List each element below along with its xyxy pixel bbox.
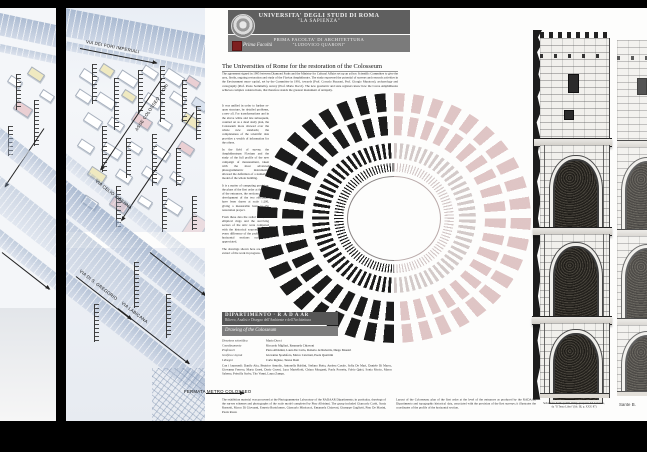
pilaster: [603, 234, 604, 316]
caption-text: The exhibition material was processed at…: [222, 398, 386, 414]
credit-label: Coordinamento: [222, 344, 266, 348]
banner-signature: Prima Facoltà: [243, 43, 272, 48]
credit-label: Direzione scientifica: [222, 339, 266, 343]
pilaster: [544, 323, 545, 398]
article-title: The Universities of Rome for the restora…: [222, 63, 398, 72]
city-block: [77, 138, 95, 154]
survey-rod: [92, 64, 97, 104]
attic-storey: [540, 38, 610, 139]
survey-rod: [182, 80, 187, 122]
city-block: [39, 89, 55, 103]
elevation-caption-line2: da "Il Terzo Libro" (lib. III, p. XXV, 8…: [538, 405, 610, 408]
credit-row: Direzione scientifica Mario Docci: [222, 339, 392, 343]
survey-rod: [126, 138, 131, 178]
arcade-third-order: [540, 145, 610, 227]
project-banner: Drawing of the Colosseum: [222, 326, 338, 336]
credit-row: Coordinamento Riccardo Migliari, Emanuel…: [222, 344, 392, 348]
university-banner: UNIVERSITA' DEGLI STUDI DI ROMA "LA SAPI…: [228, 10, 410, 52]
credit-label: I disegni: [222, 358, 266, 362]
arcade-third-order: [617, 147, 647, 229]
arch-opening: [625, 248, 647, 318]
colosseum-elevation-fragment: [617, 36, 647, 396]
caption-exhibition-note: The exhibition material was processed at…: [222, 398, 386, 418]
students-list: Con i laureandi: Danilo Aita, Beatrice A…: [222, 364, 392, 376]
corbel-row: [540, 54, 609, 58]
banner-university-row: UNIVERSITA' DEGLI STUDI DI ROMA "LA SAPI…: [228, 10, 410, 34]
survey-rod: [152, 134, 157, 186]
city-block: [99, 63, 116, 78]
credit-row: I disegni Carlo Inglese, Teresa Doni: [222, 358, 392, 362]
city-block: [75, 88, 93, 104]
attic-window: [637, 78, 647, 95]
site-map-panel: VIA DEI FORI IMPERIALI: [66, 8, 205, 421]
poster-page: VIA DEI FORI IMPERIALI: [66, 8, 647, 421]
pilaster: [544, 145, 545, 227]
colosseum-plan-drawing: [257, 93, 531, 343]
survey-rod: [114, 78, 119, 130]
credit-row: Professori Piero Albisinni, Laura De Car…: [222, 349, 392, 353]
ground-line: [617, 391, 647, 396]
arcade-first-order: [540, 323, 610, 398]
credit-value: Carlo Inglese, Teresa Doni: [266, 358, 392, 362]
credit-value: Mario Docci: [266, 339, 392, 343]
caption-plan-note: Layout of the Colosseum: plan of the fir…: [396, 398, 536, 418]
students-names: Danilo Aita, Beatrice Amodio, Antonella …: [222, 364, 392, 376]
arch-opening: [553, 159, 599, 229]
corbel-row: [617, 56, 647, 60]
attic-window: [568, 74, 579, 93]
map-ground-wash: [0, 308, 56, 421]
students-label: Con i laureandi:: [222, 364, 243, 368]
credit-label: Professori: [222, 349, 266, 353]
credit-value: Giovanna Spadafora, Marco Canciani, Paol…: [266, 354, 392, 358]
arcade-first-order: [617, 325, 647, 396]
city-block: [137, 195, 153, 209]
edge-caption-fragment: Sante B.: [619, 402, 647, 407]
city-block: [27, 66, 45, 82]
caption-text: Layout of the Colosseum: plan of the fir…: [396, 398, 536, 410]
pilaster: [603, 145, 604, 227]
survey-rod: [176, 148, 181, 186]
arch-opening: [553, 246, 599, 318]
pilaster: [544, 234, 545, 316]
arch-opening: [553, 333, 599, 400]
credits-block: Direzione scientifica Mario Docci Coordi…: [222, 339, 392, 395]
survey-rod: [196, 106, 201, 140]
arcade-second-order: [540, 234, 610, 316]
survey-rod: [134, 262, 139, 308]
elevation-caption: Sebastiano Serlio (1475-1554), prospetto…: [538, 402, 610, 416]
university-subname: "LA SAPIENZA": [228, 19, 410, 24]
city-block: [83, 112, 104, 130]
credit-value: Piero Albisinni, Laura De Carlo, Roberto…: [266, 349, 392, 353]
credit-value: Riccardo Migliari, Emanuela Chiavoni: [266, 344, 392, 348]
arch-opening: [625, 161, 647, 229]
city-block: [117, 69, 139, 88]
faculty-mark-icon: [232, 41, 242, 51]
credit-row: Grafica e layout Giovanna Spadafora, Mar…: [222, 354, 392, 358]
department-subtitle: Rilievo, Analisi e Disegno dell'Ambiente…: [222, 318, 338, 322]
poster-left-fragment: [0, 8, 56, 421]
arch-opening: [625, 335, 647, 396]
city-block: [185, 75, 201, 89]
attic-storey: [617, 40, 647, 141]
pilaster: [603, 323, 604, 398]
colosseum-elevation-drawing: [536, 32, 610, 398]
arcade-second-order: [617, 236, 647, 318]
article-intro-text: The agreement signed in 1995 between Dia…: [222, 72, 398, 93]
survey-rod: [16, 74, 21, 110]
survey-rod: [192, 196, 197, 230]
survey-rod: [94, 304, 99, 342]
survey-rod: [166, 294, 171, 338]
department-banner: DIPARTIMENTO · R A D A AR Rilievo, Anali…: [222, 312, 338, 325]
map-hatch-grid: [152, 368, 205, 421]
university-seal-icon: [231, 14, 255, 38]
ground-line: [540, 393, 609, 398]
viewer-canvas: VIA DEI FORI IMPERIALI: [0, 0, 647, 452]
credit-label: Grafica e layout: [222, 354, 266, 358]
attic-window: [564, 110, 574, 120]
city-block: [121, 89, 137, 103]
